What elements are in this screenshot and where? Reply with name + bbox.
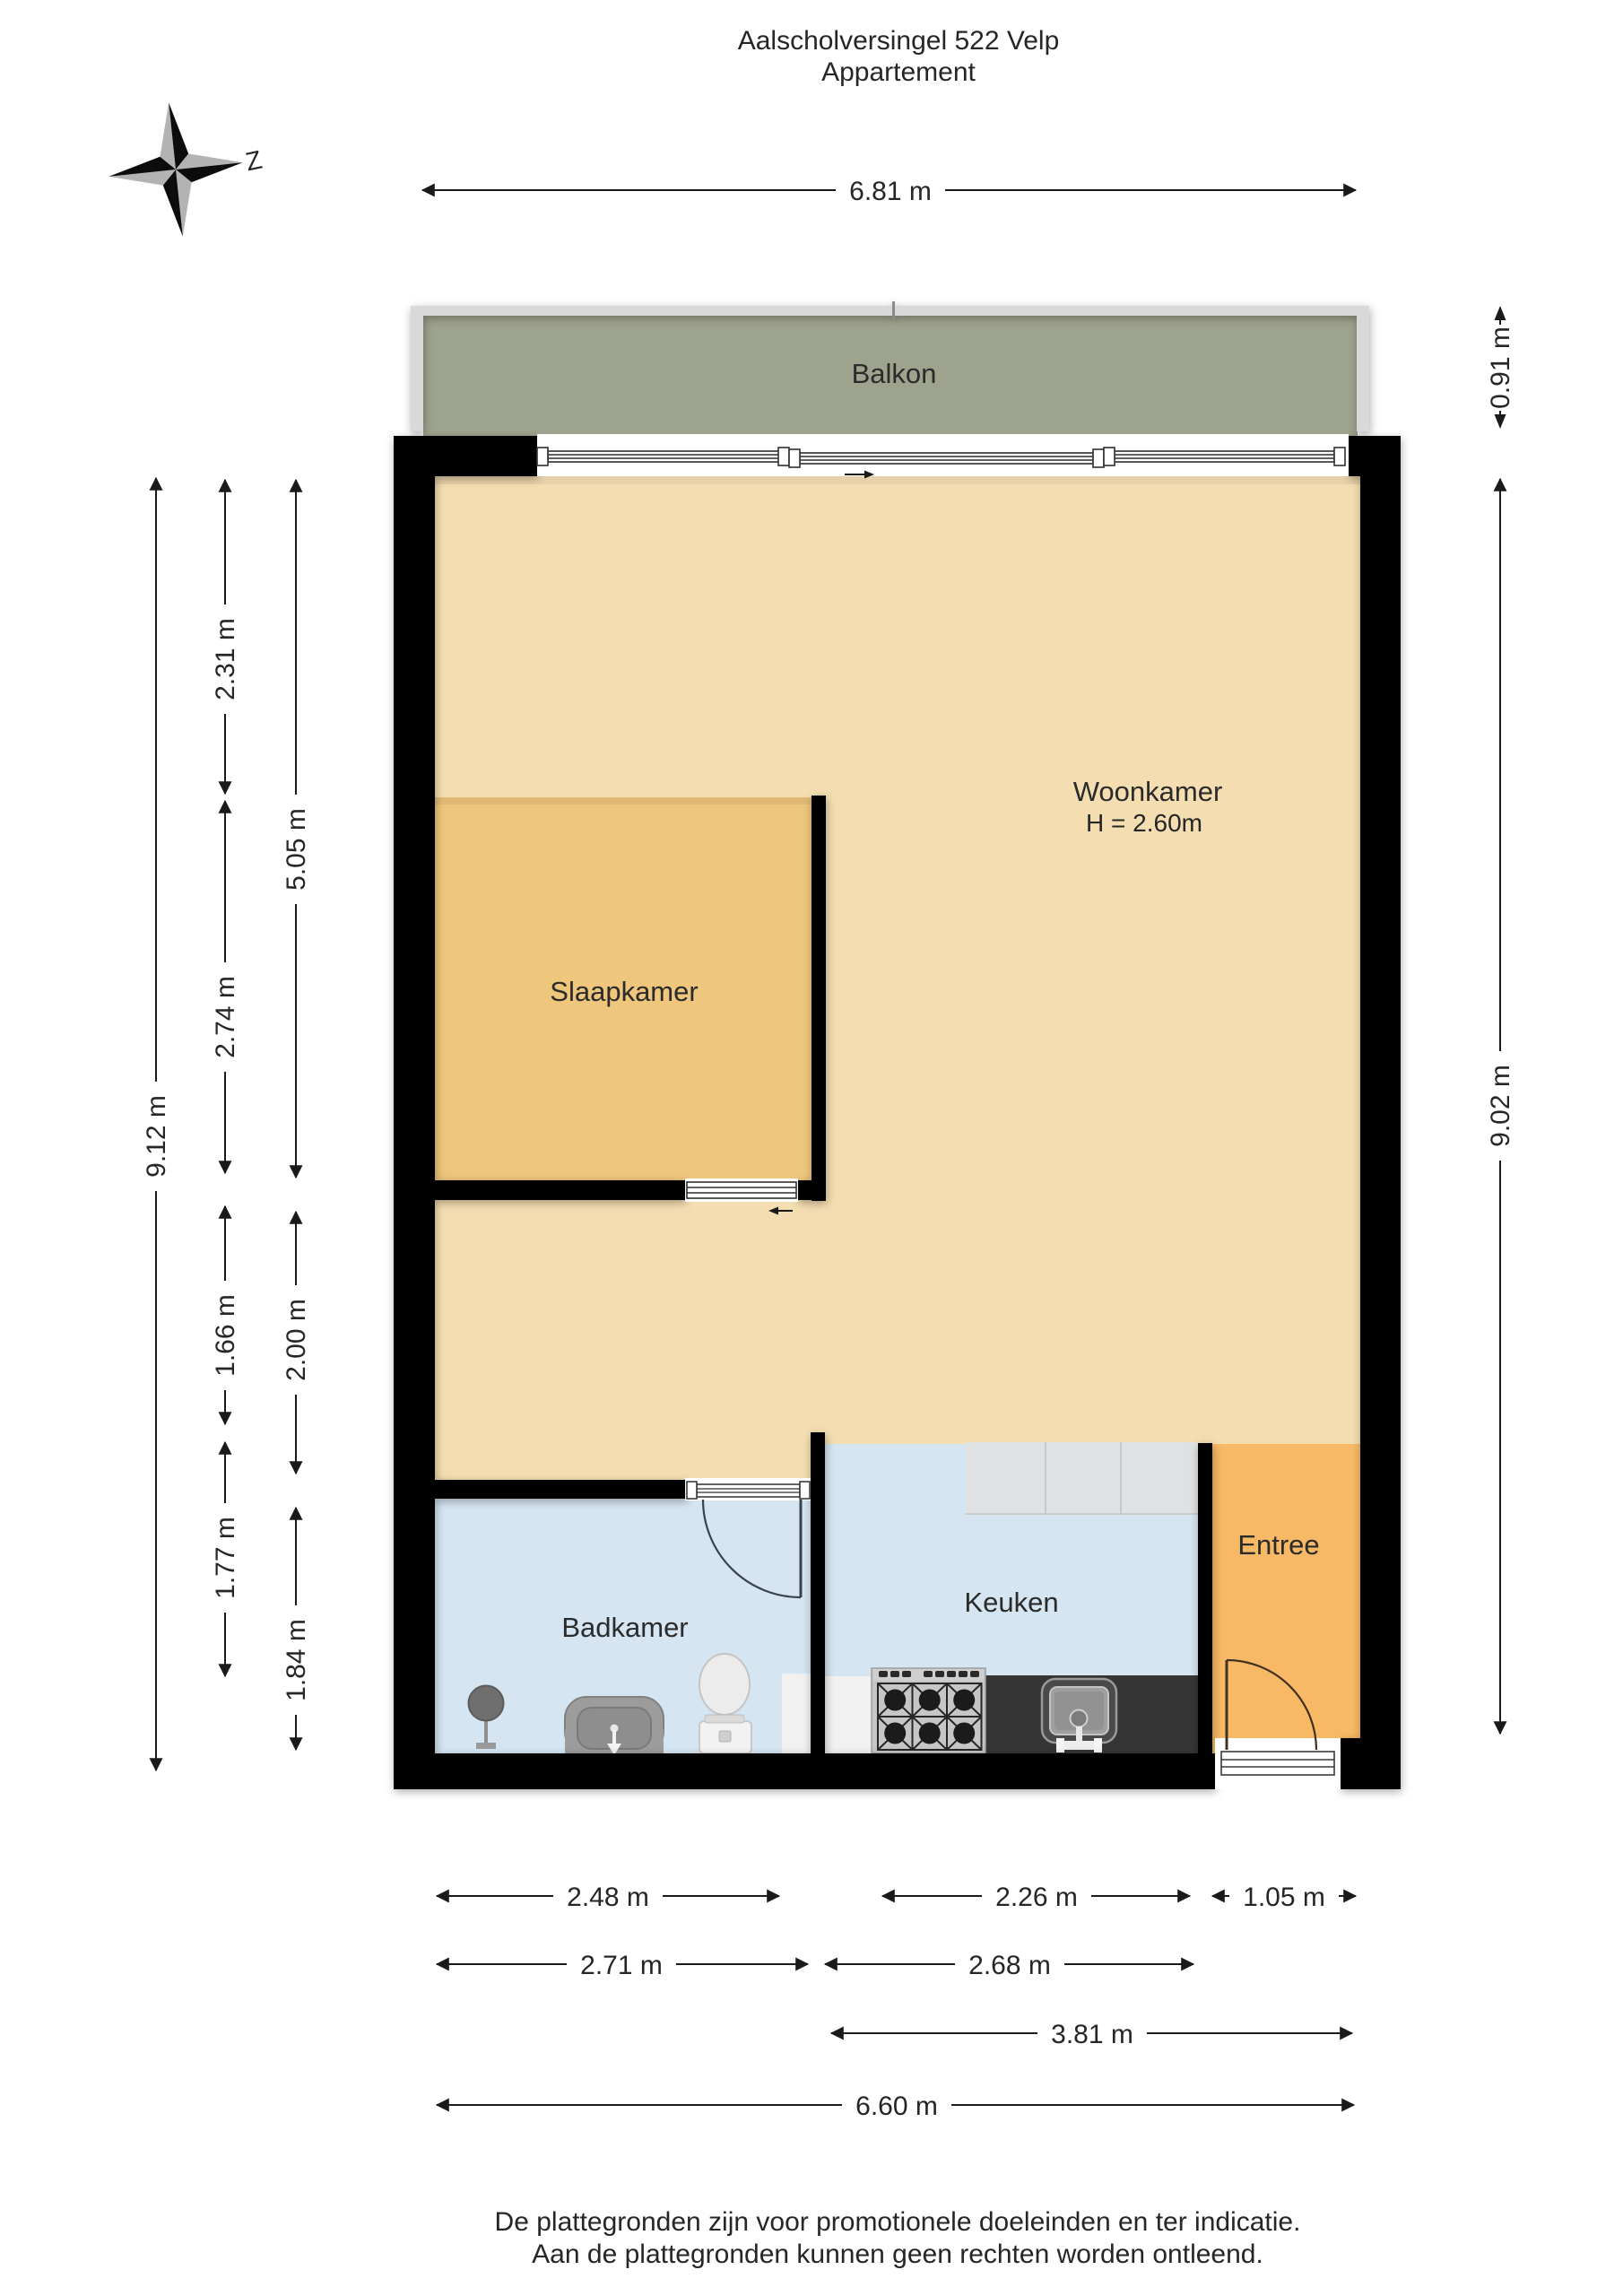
svg-text:De plattegronden zijn voor pro: De plattegronden zijn voor promotionele … [495,2207,1301,2237]
svg-text:2.74 m: 2.74 m [211,976,240,1058]
svg-text:1.66 m: 1.66 m [211,1294,240,1377]
svg-text:6.60 m: 6.60 m [855,2092,938,2121]
svg-text:Entree: Entree [1237,1529,1319,1561]
svg-text:Woonkamer: Woonkamer [1073,776,1223,807]
svg-text:Appartement: Appartement [821,57,976,87]
svg-text:9.12 m: 9.12 m [142,1095,171,1178]
svg-text:Keuken: Keuken [964,1587,1058,1618]
svg-text:1.77 m: 1.77 m [211,1517,240,1599]
svg-text:2.68 m: 2.68 m [968,1951,1051,1980]
svg-text:Badkamer: Badkamer [561,1612,688,1643]
svg-text:5.05 m: 5.05 m [282,808,311,891]
svg-text:Slaapkamer: Slaapkamer [550,976,698,1007]
svg-text:1.84 m: 1.84 m [282,1619,311,1701]
svg-text:H = 2.60m: H = 2.60m [1086,809,1202,837]
svg-text:2.00 m: 2.00 m [282,1299,311,1381]
svg-text:1.05 m: 1.05 m [1243,1883,1325,1912]
svg-text:Balkon: Balkon [852,358,937,389]
svg-text:Aan de plattegronden kunnen ge: Aan de plattegronden kunnen geen rechten… [532,2239,1263,2269]
svg-text:2.31 m: 2.31 m [211,618,240,700]
svg-text:6.81 m: 6.81 m [849,177,932,206]
svg-text:2.48 m: 2.48 m [567,1883,649,1912]
svg-text:2.26 m: 2.26 m [995,1883,1078,1912]
svg-text:2.71 m: 2.71 m [580,1951,663,1980]
svg-text:0.91 m: 0.91 m [1486,326,1515,409]
svg-text:9.02 m: 9.02 m [1486,1065,1515,1147]
svg-text:3.81 m: 3.81 m [1051,2020,1133,2049]
svg-text:Aalscholversingel 522 Velp: Aalscholversingel 522 Velp [738,26,1060,56]
